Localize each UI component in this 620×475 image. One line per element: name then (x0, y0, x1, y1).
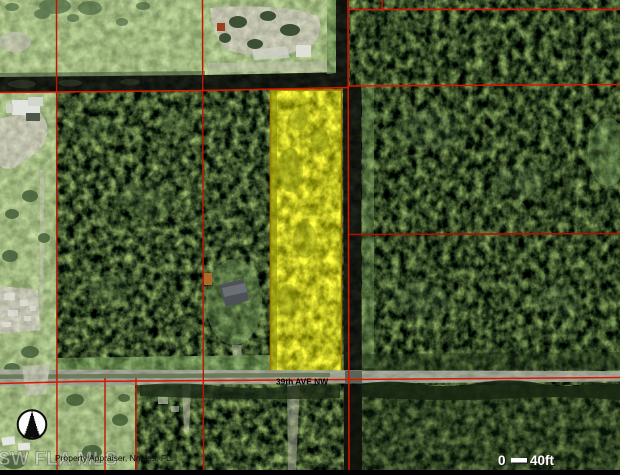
svg-text:39th AVE NW: 39th AVE NW (276, 377, 328, 387)
svg-text:40ft: 40ft (530, 453, 555, 468)
svg-text:0: 0 (498, 453, 506, 468)
svg-text:Property Appraiser, Naples, FL: Property Appraiser, Naples, FL. (55, 453, 173, 463)
